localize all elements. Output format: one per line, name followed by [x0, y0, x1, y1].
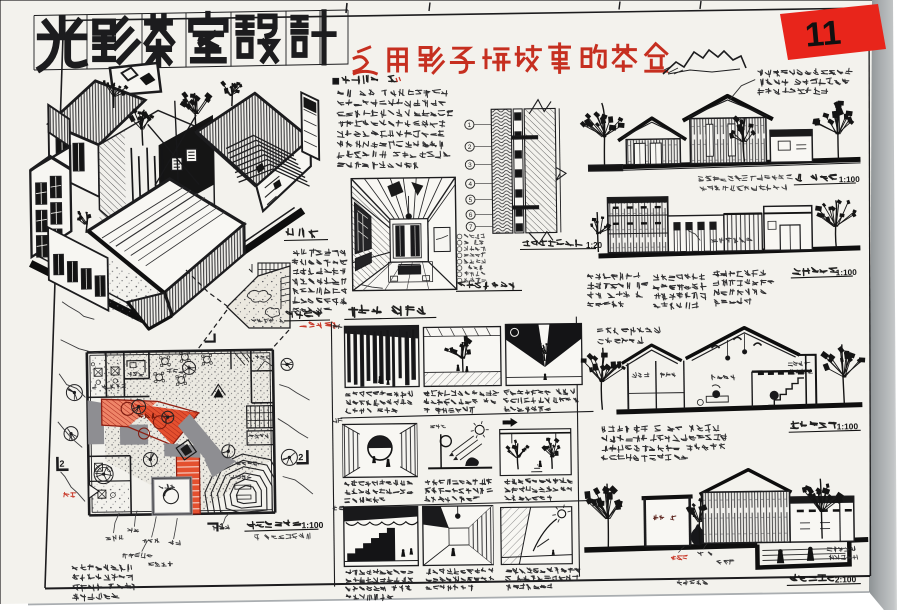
svg-text:1:100: 1:100 — [837, 421, 859, 431]
svg-text:1:100: 1:100 — [839, 175, 861, 184]
svg-text:1: 1 — [468, 122, 472, 129]
svg-text:1:100: 1:100 — [301, 520, 323, 530]
svg-text:1:100: 1:100 — [836, 268, 858, 277]
svg-text:2: 2 — [59, 459, 64, 469]
svg-text:1:20: 1:20 — [586, 241, 603, 250]
svg-text:6: 6 — [469, 212, 473, 219]
svg-text:2: 2 — [298, 452, 303, 462]
svg-text:3: 3 — [468, 162, 472, 169]
svg-text:4: 4 — [468, 181, 472, 188]
svg-text:7: 7 — [469, 224, 473, 231]
svg-text:2: 2 — [468, 144, 472, 151]
svg-text:11: 11 — [803, 14, 842, 55]
svg-text:2:100: 2:100 — [835, 574, 857, 584]
svg-text:5: 5 — [469, 197, 473, 204]
